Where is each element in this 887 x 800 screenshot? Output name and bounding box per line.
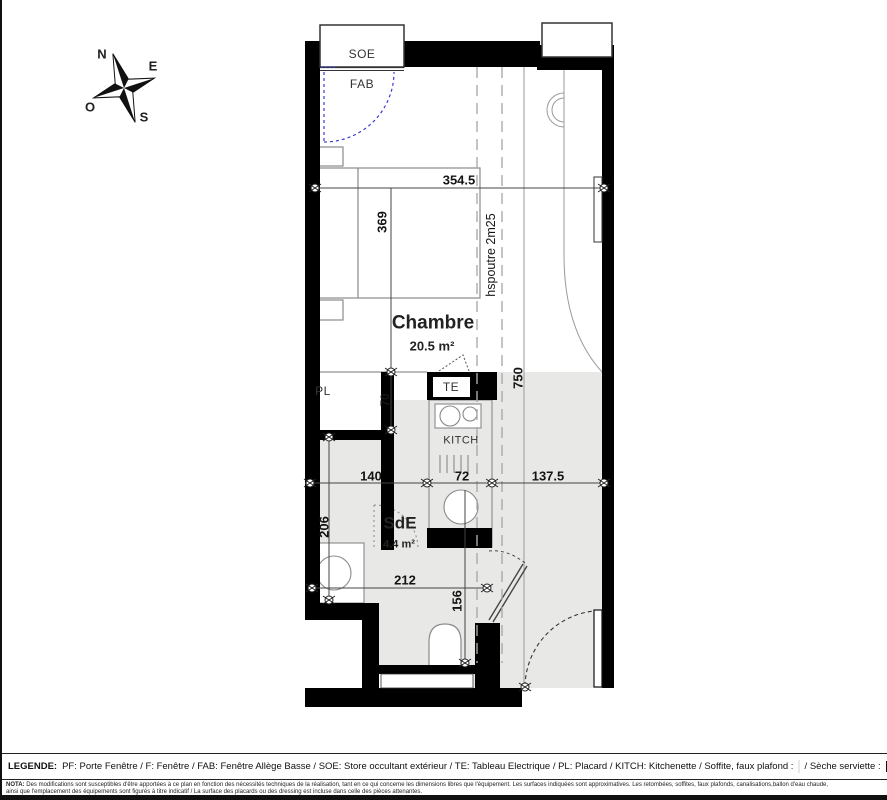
compass-south-label: S: [140, 110, 149, 125]
toilet: [429, 624, 461, 665]
soffite-swatch: [798, 760, 799, 773]
room-chambre-name: Chambre: [392, 314, 474, 333]
dim-kitch-width: 72: [455, 470, 469, 483]
kitch-label: KITCH: [443, 436, 479, 447]
fab-label: FAB: [350, 78, 374, 90]
pl-label: PL: [315, 385, 331, 397]
compass-east-label: E: [149, 59, 158, 74]
te-label: TE: [443, 381, 459, 393]
bottom-border: [2, 795, 887, 800]
legend-seche-label: / Sèche serviette :: [805, 761, 881, 772]
top-right-window-box: [542, 23, 612, 57]
legend-title: LEGENDE:: [8, 761, 57, 772]
nota-title: NOTA:: [6, 782, 25, 788]
dim-wc-depth: 156: [451, 590, 464, 612]
dim-entry-width: 137.5: [532, 470, 565, 483]
dim-sde-depth: 206: [318, 516, 331, 538]
dim-total-length: 750: [512, 367, 525, 389]
beam-height-label: hspoutre 2m25: [485, 213, 498, 296]
floor-plan-drawing: [2, 0, 887, 753]
legend-items: PF: Porte Fenêtre / F: Fenêtre / FAB: Fe…: [62, 761, 793, 772]
compass-rose-icon: [82, 44, 165, 132]
compass-north-label: N: [97, 47, 106, 62]
nota-line1: Des modifications sont susceptibles d'êt…: [26, 782, 828, 788]
room-sde-area: 4.4 m²: [383, 540, 415, 551]
washbasin: [317, 543, 364, 603]
legend-bar: LEGENDE: PF: Porte Fenêtre / F: Fenêtre …: [2, 753, 887, 780]
room-sde-name: SdE: [383, 515, 416, 532]
dim-top-width: 354.5: [443, 174, 476, 187]
soe-label: SOE: [349, 48, 376, 60]
compass-west-label: O: [85, 100, 95, 115]
dim-pl-depth: 70: [379, 393, 391, 406]
dim-bed-length: 369: [376, 211, 389, 233]
te-door-swing: [439, 355, 469, 371]
duct-recess: [381, 674, 473, 688]
dim-sde-width: 212: [394, 574, 416, 587]
dim-pl-width: 140: [360, 470, 382, 483]
room-chambre-area: 20.5 m²: [410, 340, 455, 353]
floor-plan-page: N E O S SOE FAB 354.5 369 hspoutre 2m25 …: [0, 0, 887, 800]
